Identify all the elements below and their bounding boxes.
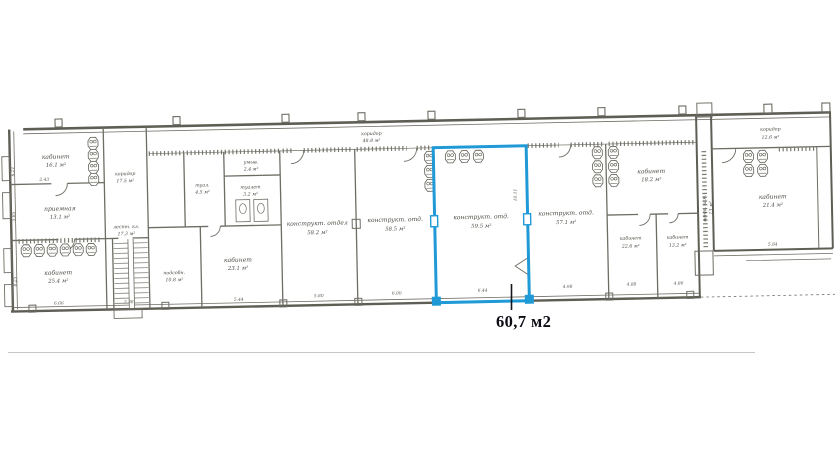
room-label: кабинет21.4 м² (759, 193, 787, 209)
svg-text:8.25: 8.25 (13, 276, 18, 286)
room-label: подсобн.10.8 м² (163, 269, 185, 283)
svg-text:10.8 м²: 10.8 м² (165, 277, 183, 283)
svg-text:коридор: коридор (361, 131, 382, 137)
svg-text:5.44: 5.44 (234, 298, 244, 303)
staircase (114, 239, 149, 309)
room-label: кабинет18.2 м² (637, 168, 665, 184)
svg-text:6.21: 6.21 (11, 167, 16, 177)
svg-text:коридор: коридор (115, 171, 136, 177)
svg-text:59.5 м²: 59.5 м² (471, 223, 492, 230)
svg-text:4.86: 4.86 (673, 281, 684, 286)
svg-text:конструкт. отд.: конструкт. отд. (453, 213, 509, 221)
svg-text:кабинет: кабинет (620, 234, 642, 241)
svg-text:18.2 м²: 18.2 м² (641, 176, 662, 183)
svg-text:кабинет: кабинет (637, 168, 665, 176)
room-label: кабинет23.1 м² (224, 257, 252, 273)
svg-text:лестн. кл.: лестн. кл. (113, 225, 140, 231)
room-label: приемная13.1 м² (44, 205, 76, 221)
svg-text:вент. кам.: вент. кам. (703, 194, 709, 222)
room-label: лестн. кл.17.3 м² (113, 225, 140, 238)
svg-text:22.6 м²: 22.6 м² (621, 243, 640, 249)
svg-text:конструкт. отдел: конструкт. отдел (287, 220, 348, 228)
toilet-fixtures (236, 199, 268, 222)
svg-text:3.2 м²: 3.2 м² (243, 191, 258, 197)
svg-text:16.1 м²: 16.1 м² (46, 161, 67, 168)
floor-plan-canvas: кабинет16.1 м² приемная13.1 м² кабинет25… (0, 0, 835, 467)
svg-text:5.85: 5.85 (12, 211, 17, 221)
svg-text:58.5 м²: 58.5 м² (385, 225, 406, 232)
svg-text:2.4 м²: 2.4 м² (243, 166, 259, 172)
svg-text:10.11: 10.11 (514, 189, 519, 202)
svg-text:13.2 м²: 13.2 м² (669, 242, 687, 248)
svg-text:21.4 м²: 21.4 м² (762, 201, 784, 208)
svg-text:17.3 м²: 17.3 м² (117, 231, 135, 237)
svg-text:умыв.: умыв. (243, 160, 259, 165)
svg-text:коридор: коридор (760, 126, 781, 132)
room-label: коридор12.6 м² (760, 126, 781, 140)
room-label: кабинет25.4 м² (44, 269, 72, 285)
svg-text:12.6 м²: 12.6 м² (762, 134, 780, 140)
svg-text:туалет: туалет (240, 185, 261, 190)
svg-text:2.38: 2.38 (123, 300, 134, 305)
svg-text:6.44: 6.44 (478, 289, 488, 294)
room-label: коридор17.5 м² (115, 171, 136, 184)
room-label: умыв.2.4 м² (243, 160, 259, 172)
svg-text:17.5 м²: 17.5 м² (116, 178, 134, 184)
svg-text:туал.: туал. (195, 183, 210, 188)
svg-text:конструкт. отд.: конструкт. отд. (538, 209, 594, 217)
svg-text:кабинет: кабинет (224, 257, 252, 265)
svg-text:6.00: 6.00 (392, 291, 402, 296)
svg-text:кабинет: кабинет (44, 269, 72, 277)
svg-text:кабинет: кабинет (667, 233, 689, 240)
svg-text:4.5 м²: 4.5 м² (194, 189, 210, 195)
room-label: конструкт. отд.57.1 м² (538, 209, 594, 226)
svg-text:кабинет: кабинет (759, 193, 787, 201)
svg-text:5.84: 5.84 (768, 243, 778, 248)
svg-text:кабинет: кабинет (42, 153, 70, 161)
door-arcs (55, 141, 739, 284)
scanned-floor-plan-page: кабинет16.1 м² приемная13.1 м² кабинет25… (0, 0, 835, 467)
room-label: кабинет16.1 м² (42, 153, 70, 169)
svg-text:2.43: 2.43 (38, 178, 49, 183)
svg-text:приемная: приемная (44, 205, 76, 213)
svg-text:58.2 м²: 58.2 м² (307, 229, 328, 236)
svg-text:48.8 м²: 48.8 м² (362, 138, 381, 144)
room-label: туал.4.5 м² (194, 183, 210, 195)
room-label: туалет3.2 м² (240, 185, 261, 197)
room-label: коридор48.8 м² (361, 131, 382, 144)
room-label: конструкт. отд.58.5 м² (367, 216, 423, 233)
svg-text:4.98: 4.98 (562, 285, 573, 290)
svg-text:13 м²: 13 м² (708, 201, 714, 214)
room-label: кабинет13.2 м² (667, 233, 690, 248)
svg-text:57.1 м²: 57.1 м² (556, 219, 577, 226)
svg-text:конструкт. отд.: конструкт. отд. (367, 216, 423, 224)
svg-text:подсобн.: подсобн. (163, 269, 185, 276)
svg-text:25.4 м²: 25.4 м² (47, 277, 69, 284)
svg-text:23.1 м²: 23.1 м² (227, 265, 249, 272)
room-labels: кабинет16.1 м² приемная13.1 м² кабинет25… (41, 122, 788, 286)
area-callout-label: 60,7 м2 (496, 312, 551, 331)
room-label: конструкт. отдел58.2 м² (287, 220, 349, 237)
svg-text:5.80: 5.80 (314, 294, 324, 299)
room-label-highlighted: конструкт. отд.59.5 м² (453, 213, 509, 230)
svg-text:13.1 м²: 13.1 м² (50, 213, 71, 220)
svg-text:4.88: 4.88 (626, 282, 637, 287)
room-label: кабинет22.6 м² (620, 234, 643, 249)
svg-text:6.66: 6.66 (54, 301, 64, 306)
